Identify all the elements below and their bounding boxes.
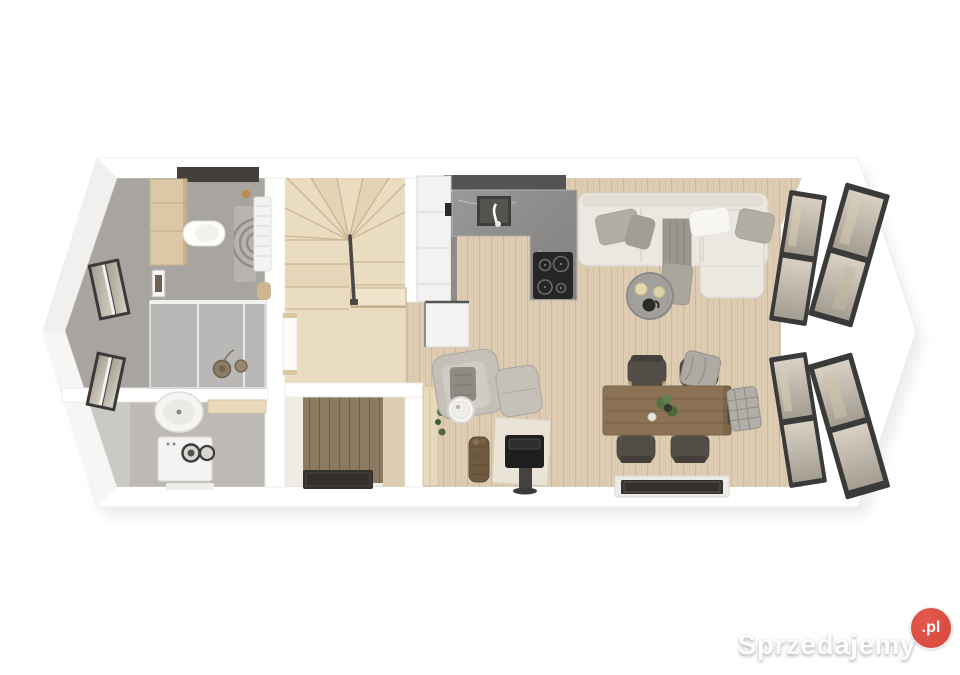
watermark-brand: Sprzedajemy	[738, 629, 916, 661]
bottom-step	[351, 288, 406, 306]
towel	[242, 190, 251, 199]
kitchen-cabinet-run	[417, 176, 451, 302]
floor-plan-render: Sprzedajemy .pl	[0, 0, 960, 675]
dining-table	[603, 386, 731, 435]
utility-mat	[166, 483, 214, 490]
teapot	[643, 299, 656, 312]
stair-wall-niche	[283, 313, 297, 375]
kitchen-lower-cabinet	[425, 302, 469, 347]
dining-chair	[671, 433, 709, 463]
coffee-table	[627, 273, 673, 319]
entry-floor-strip	[383, 397, 405, 487]
dining-chair	[628, 355, 666, 386]
kitchen-sink	[477, 196, 511, 227]
washing-machine	[158, 437, 214, 481]
table-dish	[648, 413, 656, 421]
bath-basket	[257, 282, 271, 300]
firewood-basket	[469, 437, 489, 482]
sofa-pillow-white	[688, 206, 731, 237]
kitchen-backsplash	[444, 175, 566, 190]
terrace-doormat	[615, 476, 729, 497]
watermark-pl-badge: .pl	[910, 607, 952, 649]
cabinet-appliance	[445, 203, 452, 216]
wall-hung-toilet	[183, 221, 225, 246]
vanity-cabinet	[150, 179, 187, 265]
plate	[635, 283, 647, 295]
ottoman	[495, 364, 544, 418]
side-table	[448, 397, 474, 423]
dining-chair-plaid	[726, 386, 762, 432]
round-basin	[155, 392, 203, 432]
wall-entry-living	[405, 397, 423, 487]
entry-hall	[303, 470, 373, 489]
stove-pipe	[519, 466, 532, 490]
watermark: Sprzedajemy .pl	[738, 619, 950, 661]
induction-cooktop	[533, 252, 573, 299]
bathroom-window	[177, 167, 259, 182]
towel-radiator	[254, 197, 271, 271]
shower	[150, 300, 266, 388]
utility-shelf	[208, 400, 266, 413]
plate-2	[654, 287, 665, 298]
wall-picture	[152, 270, 165, 297]
floor-plan-svg	[0, 0, 960, 675]
wall-entry-top	[285, 383, 423, 397]
shower-head-small	[235, 360, 247, 372]
dining-chair	[617, 433, 655, 463]
